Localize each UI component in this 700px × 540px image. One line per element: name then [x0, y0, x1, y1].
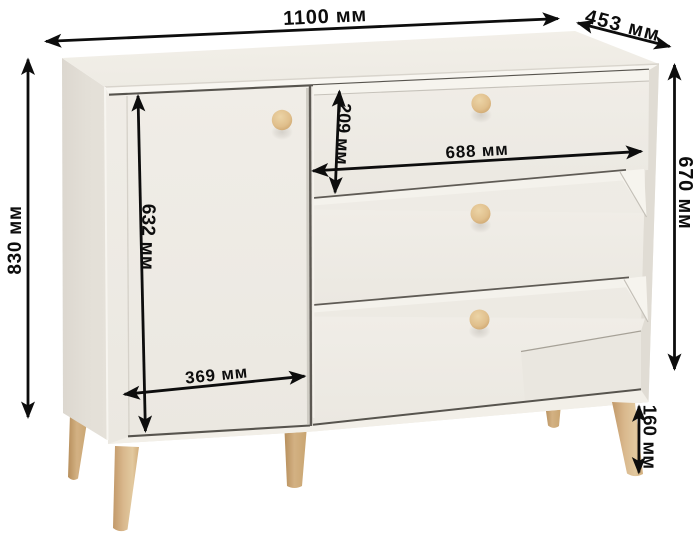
svg-text:1100 мм: 1100 мм: [283, 4, 368, 30]
svg-text:830 мм: 830 мм: [5, 205, 26, 274]
svg-text:632 мм: 632 мм: [136, 204, 158, 271]
svg-text:670 мм: 670 мм: [674, 156, 696, 229]
svg-text:160 мм: 160 мм: [640, 405, 661, 470]
svg-text:209 мм: 209 мм: [332, 103, 355, 165]
svg-text:688 мм: 688 мм: [445, 140, 509, 163]
